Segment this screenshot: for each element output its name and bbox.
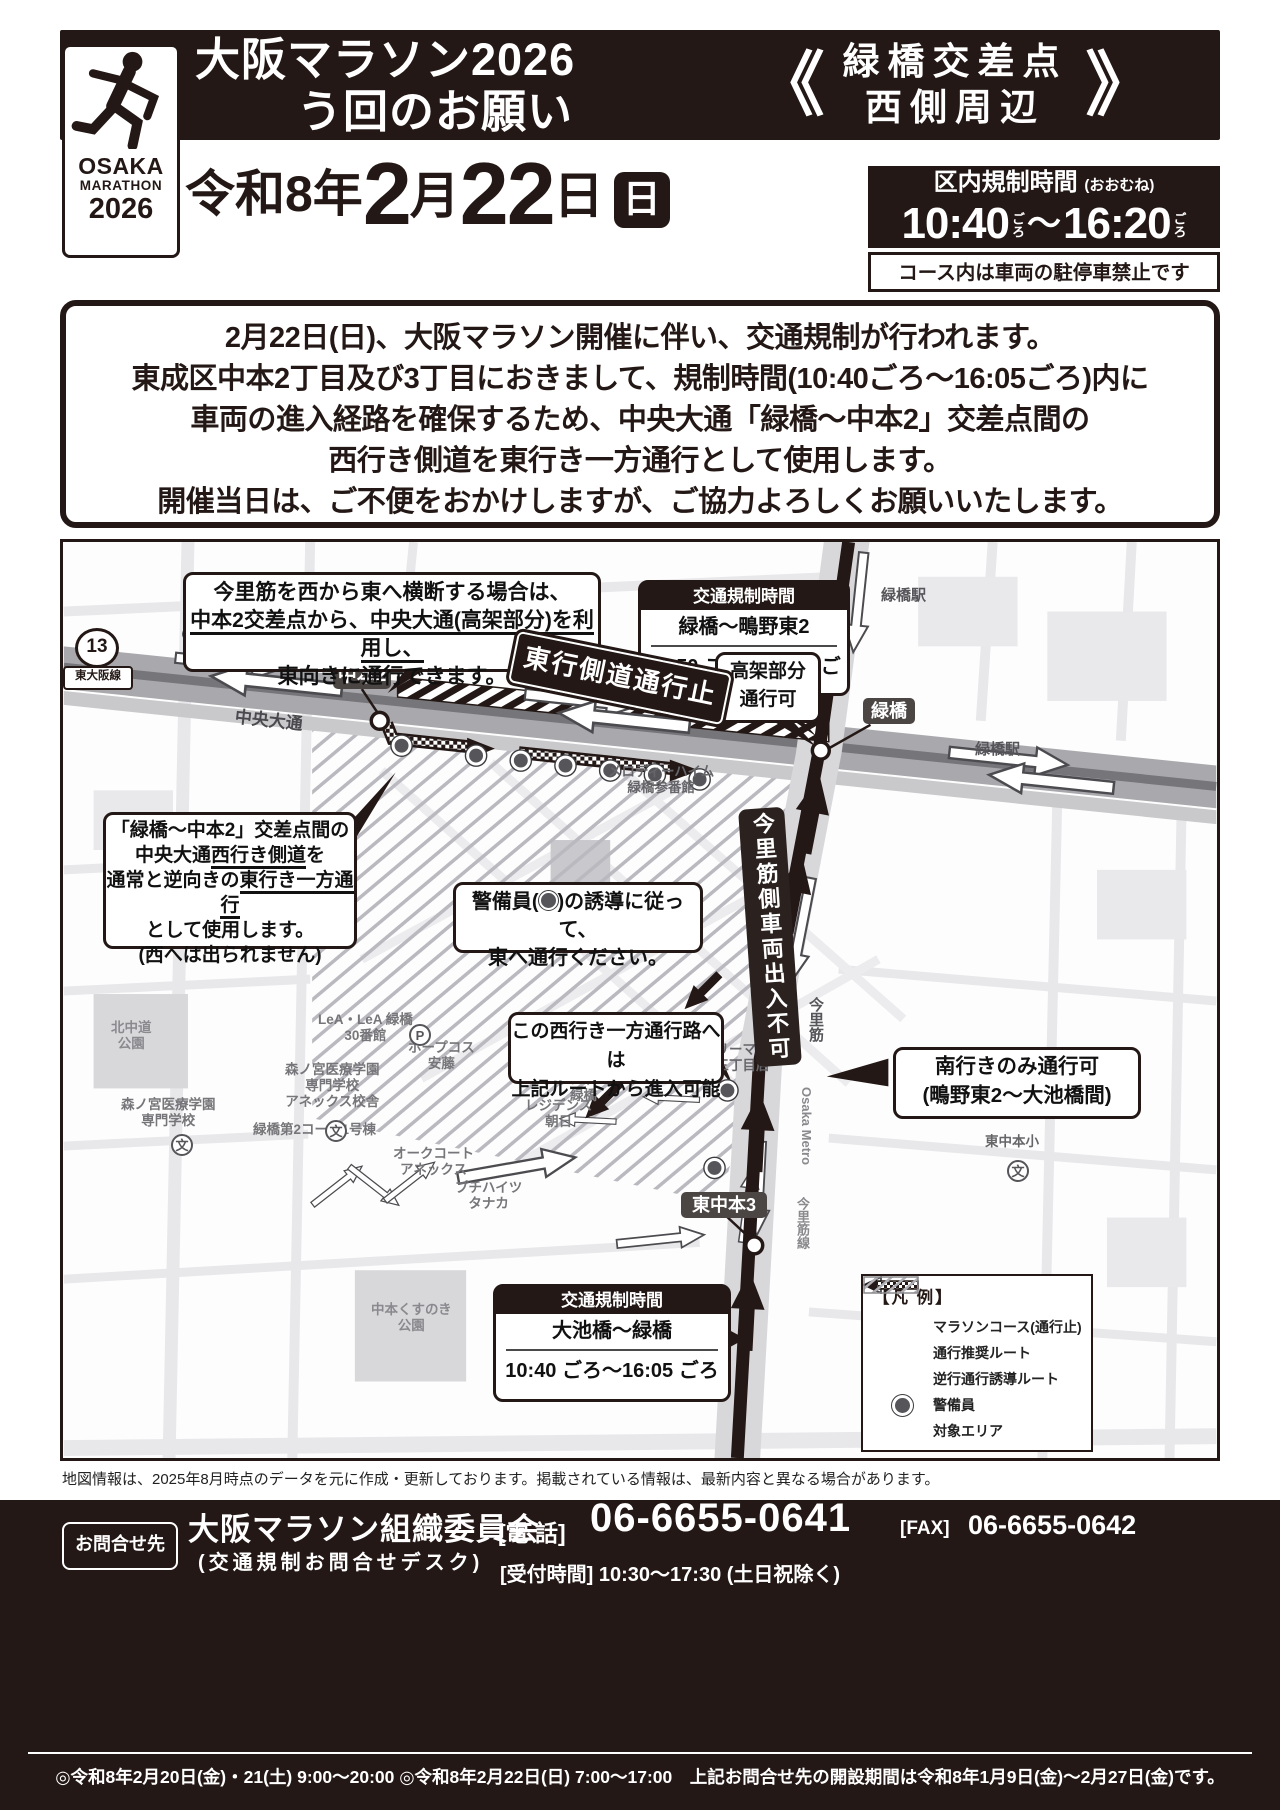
south-only-line2: (鴫野東2～大池橋間): [896, 1081, 1138, 1110]
place-morinomiya: 森ノ宮医療学園 専門学校: [121, 1097, 216, 1129]
area-line2: 西側周辺: [843, 85, 1068, 131]
event-date: 令和8年 2 月 22 日 日: [185, 148, 865, 240]
runner-icon: [71, 47, 171, 149]
organization-name: 大阪マラソン組織委員会: [188, 1504, 540, 1549]
restriction-start: 10:40: [901, 201, 1009, 247]
logo-text-osaka: OSAKA: [65, 154, 177, 178]
notice-line-4: 西行き側道を東行き一方通行として使用します。: [66, 441, 1214, 482]
restriction-approx1: ごろ: [1010, 212, 1024, 238]
legend-row-course: マラソンコース(通行止): [871, 1314, 1083, 1340]
desk-schedule: ◎令和8年2月20日(金)・21(土) 9:00～20:00 ◎令和8年2月22…: [0, 1764, 1280, 1789]
tel-label: [電 話]: [498, 1514, 566, 1548]
area-title: 《 緑橋交差点 西側周辺 》: [700, 34, 1210, 136]
legend-row-recommended: 通行推奨ルート: [871, 1340, 1083, 1366]
bracket-open: 《: [755, 35, 825, 135]
elevated-line1: 高架部分: [718, 658, 818, 686]
reception-hours-value: 10:30～17:30 (土日祝除く): [599, 1564, 840, 1586]
legend-label-course: マラソンコース(通行止): [933, 1317, 1082, 1337]
fax-number: 06-6655-0642: [968, 1510, 1136, 1541]
elevated-line2: 通行可: [718, 686, 818, 714]
notice-line-3: 車両の進入経路を確保するため、中央大通「緑橋～中本2」交差点間の: [66, 400, 1214, 441]
guard-line2: 東へ通行ください。: [456, 944, 700, 972]
restriction-time-row: 10:40 ごろ ～ 16:20 ごろ: [868, 201, 1220, 247]
elevated-ok-callout: 高架部分 通行可: [715, 652, 821, 723]
bracket-close: 》: [1086, 35, 1156, 135]
sideroad-line2-post: を: [306, 845, 325, 866]
restriction-title: 区内規制時間 (おおむね): [868, 166, 1220, 201]
tel-number: 06-6655-0641: [590, 1496, 851, 1541]
legend-label-area: 対象エリア: [933, 1421, 1003, 1441]
guard-line1-pre: 警備員(: [472, 891, 539, 913]
place-higashinakamoto-elem: 東中本小: [985, 1134, 1039, 1150]
sideroad-line3-underline: 東行き一方通行: [220, 870, 353, 919]
regulation-north-title: 交通規制時間: [641, 583, 847, 610]
osaka-marathon-logo: OSAKA MARATHON 2026: [62, 44, 180, 258]
place-petithights: プチハイツ タナカ: [455, 1180, 522, 1212]
weekday-badge: 日: [614, 172, 670, 228]
parking-icon: P: [409, 1024, 431, 1046]
date-month: 2: [363, 148, 410, 240]
sideroad-line1: 「緑橋～中本2」交差点間の: [106, 818, 354, 843]
title-line2: う回のお願い: [195, 86, 675, 138]
fax-label: [FAX]: [900, 1518, 950, 1540]
entry-route-callout: この西行き一方通行路へは 上記ルートから進入可能: [508, 1012, 724, 1084]
reception-hours: [受付時間] 10:30～17:30 (土日祝除く): [500, 1558, 840, 1587]
place-kusunoki-park: 中本くすのき 公園: [371, 1302, 452, 1334]
school-icon-morinomiya: 文: [171, 1134, 193, 1156]
restriction-note: (おおむね): [1084, 177, 1154, 194]
legend-row-guard: 警備員: [871, 1392, 1083, 1418]
legend-row-area: 対象エリア: [871, 1418, 1083, 1444]
guard-line1: 警備員()の誘導に従って、: [456, 888, 700, 944]
sideroad-line5: (西へは出られません): [106, 943, 354, 968]
footer-bar: お問合せ先 大阪マラソン組織委員会 (交通規制お問合せデスク) [電 話] 06…: [0, 1500, 1280, 1810]
district-restriction-time-box: 区内規制時間 (おおむね) 10:40 ごろ ～ 16:20 ごろ: [868, 166, 1220, 248]
no-parking-note: コース内は車両の駐停車禁止です: [868, 252, 1220, 292]
area-line1: 緑橋交差点: [843, 39, 1068, 85]
legend-label-recommended: 通行推奨ルート: [933, 1343, 1031, 1363]
date-month-unit: 月: [410, 152, 460, 240]
place-lea: LeA・LeA 緑橋 30番館: [318, 1012, 413, 1044]
guard-line1-post: )の誘導に従って、: [558, 891, 685, 941]
higashiosaka-line-label: 東大阪線: [63, 666, 133, 690]
entry-line1: この西行き一方通行路へは: [511, 1017, 721, 1075]
legend-row-reverse: 逆行通行誘導ルート: [871, 1366, 1083, 1392]
legend-label-reverse: 逆行通行誘導ルート: [933, 1369, 1059, 1389]
entry-line2: 上記ルートから進入可能: [511, 1075, 721, 1104]
restriction-approx2: ごろ: [1172, 212, 1186, 238]
regulation-south-title: 交通規制時間: [496, 1287, 728, 1314]
map-legend: 【凡 例】 マラソンコース(通行止) 通行推奨ルート: [861, 1274, 1093, 1452]
guard-callout: 警備員()の誘導に従って、 東へ通行ください。: [453, 882, 703, 953]
place-morinomiya-annex: 森ノ宮医療学園 専門学校 アネックス校舎: [285, 1062, 380, 1110]
restriction-tilde: ～: [1027, 201, 1061, 247]
sideroad-line2: 中央大通西行き側道を: [106, 843, 354, 868]
notice-line-5: 開催当日は、ご不便をおかけしますが、ご協力よろしくお願いいたします。: [66, 482, 1214, 523]
regulation-north-section: 緑橋～鴫野東2: [651, 610, 837, 647]
date-day-unit: 日: [554, 152, 604, 240]
sideroad-line3: 通常と逆向きの東行き一方通行: [106, 868, 354, 918]
area-lines: 緑橋交差点 西側周辺: [843, 39, 1068, 131]
notice-line-2: 東成区中本2丁目及び3丁目におきまして、規制時間(10:40ごろ～16:05ごろ…: [66, 359, 1214, 400]
place-melody: メロディーハイム 緑橋参番館: [608, 764, 714, 796]
flyer-page: OSAKA MARATHON 2026 大阪マラソン2026 う回のお願い 《 …: [0, 0, 1280, 1810]
legend-guard-icon: [871, 1395, 933, 1416]
title-line1: 大阪マラソン2026: [195, 34, 675, 86]
contact-label-box: お問合せ先: [62, 1522, 178, 1570]
traffic-map: 東行側道通行止 今里筋側車両出入不可 13 東大阪線 中本2 緑橋 東中本3 O…: [60, 539, 1220, 1461]
logo-text-2026: 2026: [65, 194, 177, 224]
place-corpo: 緑橋第2コーポ1号棟: [253, 1122, 376, 1138]
school-icon-elem: 文: [1007, 1160, 1029, 1182]
place-kitanakamichi-park: 北中道 公園: [111, 1020, 152, 1052]
regulation-south-time: 10:40 ごろ～16:05 ごろ: [496, 1351, 728, 1391]
sideroad-callout: 「緑橋～中本2」交差点間の 中央大通西行き側道を 通常と逆向きの東行き一方通行 …: [103, 812, 357, 949]
higashinakamoto3-badge: 東中本3: [681, 1192, 767, 1218]
reception-hours-label: [受付時間]: [500, 1564, 593, 1586]
restriction-title-text: 区内規制時間: [934, 169, 1078, 196]
school-icon-annex: 文: [325, 1120, 347, 1142]
crossing-line1: 今里筋を西から東へ横断する場合は、: [186, 579, 598, 607]
place-oakcourt: オークコート アネックス: [393, 1146, 474, 1178]
flyer-title: 大阪マラソン2026 う回のお願い: [195, 34, 675, 138]
imazato-suji-label: 今里筋: [805, 997, 826, 1042]
sideroad-line3-pre: 通常と逆向きの: [106, 870, 239, 891]
footer-separator: [28, 1752, 1252, 1754]
metro-imazato-label: Osaka Metro: [799, 1087, 814, 1165]
sideroad-line2-pre: 中央大通: [135, 845, 211, 866]
logo-text-marathon: MARATHON: [65, 178, 177, 194]
midoribashi-station-right: 緑橋駅: [975, 738, 1020, 759]
date-day: 22: [460, 148, 554, 240]
notice-line-1: 2月22日(日)、大阪マラソン開催に伴い、交通規制が行われます。: [66, 318, 1214, 359]
imazato-line-label: 今里筋線: [793, 1197, 812, 1249]
south-only-callout: 南行きのみ通行可 (鴫野東2～大池橋間): [893, 1047, 1141, 1119]
route-13-shield: 13: [75, 628, 119, 668]
map-data-note: 地図情報は、2025年8月時点のデータを元に作成・更新しております。掲載されてい…: [62, 1468, 939, 1489]
legend-label-guard: 警備員: [933, 1395, 975, 1415]
notice-box: 2月22日(日)、大阪マラソン開催に伴い、交通規制が行われます。 東成区中本2丁…: [60, 300, 1220, 528]
south-only-line1: 南行きのみ通行可: [896, 1052, 1138, 1081]
sideroad-line2-underline: 西行き側道: [211, 845, 306, 869]
restriction-end: 16:20: [1063, 201, 1171, 247]
midoribashi-station-top: 緑橋駅: [881, 584, 926, 605]
midoribashi-badge: 緑橋: [863, 698, 915, 724]
regulation-south-section: 大池橋～緑橋: [506, 1314, 718, 1351]
regulation-south-box: 交通規制時間 大池橋～緑橋 10:40 ごろ～16:05 ごろ: [493, 1284, 731, 1402]
desk-name: (交通規制お問合せデスク): [198, 1546, 483, 1575]
guard-icon: [539, 891, 558, 910]
date-era: 令和8年: [185, 148, 363, 240]
sideroad-line4: として使用します。: [106, 918, 354, 943]
